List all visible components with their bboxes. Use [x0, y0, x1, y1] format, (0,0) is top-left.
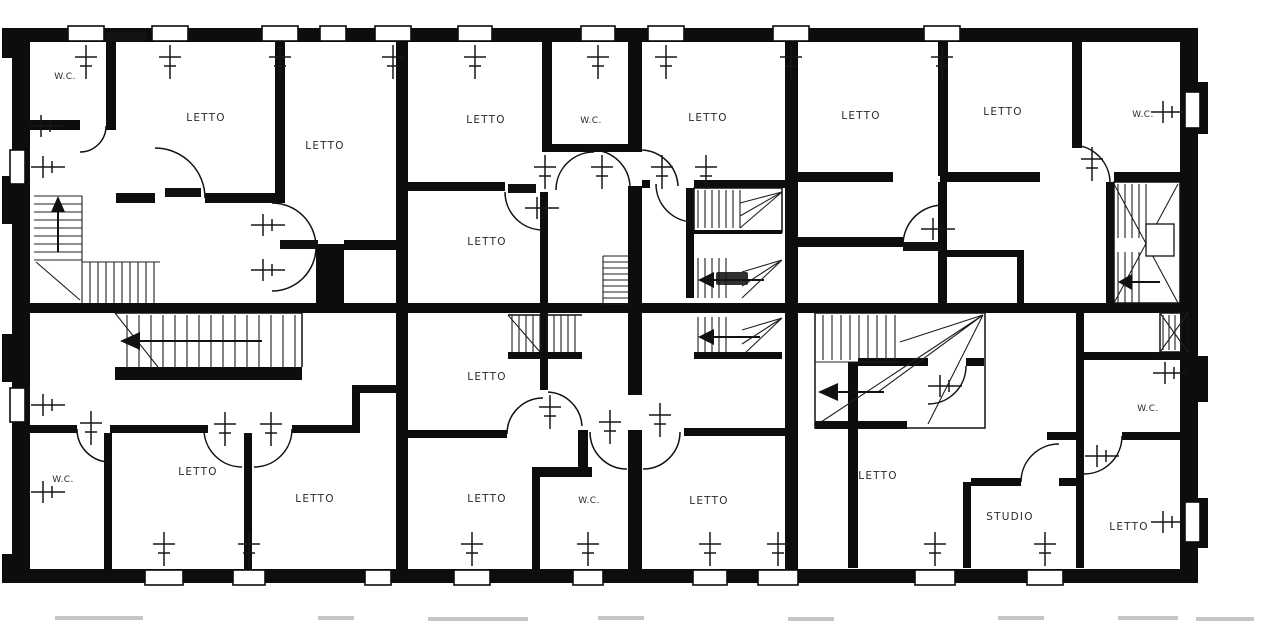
floor-plan-page: W.C. LETTO LETTO LETTO W.C. LETTO LETTO …: [0, 0, 1280, 631]
room-label-studio: STUDIO: [986, 511, 1033, 523]
staircase-center: [694, 188, 782, 359]
staircase-bottom-right: [815, 313, 985, 429]
room-label-letto-6: LETTO: [983, 106, 1022, 118]
room-label-letto-1: LETTO: [186, 112, 225, 124]
room-label-letto-13: LETTO: [858, 470, 897, 482]
room-label-letto-3: LETTO: [466, 114, 505, 126]
room-label-wc-1: W.C.: [54, 72, 75, 82]
room-label-wc-2: W.C.: [580, 116, 601, 126]
room-label-letto-4: LETTO: [688, 112, 727, 124]
room-label-wc-4: W.C.: [52, 475, 73, 485]
staircase-top-left: [34, 196, 160, 303]
room-label-letto-8: LETTO: [178, 466, 217, 478]
scan-smudge: [104, 32, 146, 41]
shaft-solid: [316, 244, 344, 310]
staircase-bottom-left: [115, 313, 302, 380]
room-label-wc-5: W.C.: [578, 496, 599, 506]
staircase-right: [1114, 182, 1180, 303]
room-label-letto-5: LETTO: [841, 110, 880, 122]
room-labels: W.C. LETTO LETTO LETTO W.C. LETTO LETTO …: [52, 72, 1158, 533]
faint-scan-marks: [55, 616, 1254, 621]
room-label-wc-3: W.C.: [1132, 110, 1153, 120]
room-label-letto-12: LETTO: [689, 495, 728, 507]
room-label-letto-9: LETTO: [295, 493, 334, 505]
room-label-letto-14: LETTO: [1109, 521, 1148, 533]
room-label-wc-6: W.C.: [1137, 404, 1158, 414]
room-label-letto-10: LETTO: [467, 371, 506, 383]
room-label-letto-7: LETTO: [467, 236, 506, 248]
room-label-letto-11: LETTO: [467, 493, 506, 505]
illegible-stair-note: [716, 272, 748, 285]
room-label-letto-2: LETTO: [305, 140, 344, 152]
floor-plan-drawing: W.C. LETTO LETTO LETTO W.C. LETTO LETTO …: [0, 0, 1280, 631]
